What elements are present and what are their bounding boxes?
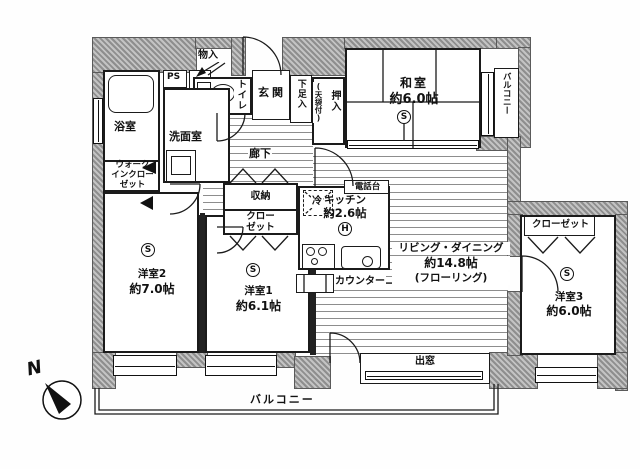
wall-top-washitsu bbox=[345, 38, 497, 48]
wall-top-right-corner bbox=[497, 38, 530, 48]
wall-left bbox=[93, 38, 103, 388]
stove-burner-2 bbox=[318, 247, 327, 256]
wall-room3-window-left bbox=[490, 353, 537, 388]
shoe-cabinet-label: 下足入 bbox=[294, 79, 307, 109]
room1-size-label: 約6.1帖 bbox=[205, 299, 312, 313]
stove-burner-3 bbox=[311, 258, 318, 265]
room3-window bbox=[535, 367, 598, 383]
room1-s-symbol: S bbox=[246, 263, 260, 277]
washitsu-s-symbol: S bbox=[397, 110, 411, 124]
wall-right-upper bbox=[519, 48, 530, 147]
closet-center-label: クロー ゼット bbox=[225, 211, 296, 235]
closet-right-label: クローゼット bbox=[524, 219, 597, 230]
wall-bottom-1 bbox=[177, 353, 207, 367]
north-label: N bbox=[24, 356, 46, 381]
stove-burner-1 bbox=[306, 247, 315, 256]
room1 bbox=[205, 215, 310, 353]
floor-plan: 収納 クロー ゼット 出窓 bbox=[0, 0, 640, 469]
wall-washitsu-bottom bbox=[477, 137, 510, 150]
oshiire-label: 押入 bbox=[327, 90, 341, 112]
monoire-label: 物入 bbox=[197, 50, 219, 62]
kitchen-sink-drain bbox=[362, 256, 373, 267]
storage-closet-block: 収納 クロー ゼット bbox=[223, 183, 298, 235]
wall-bottom-left-corner bbox=[93, 353, 115, 388]
washroom-label: 洗面室 bbox=[168, 130, 203, 143]
living-size-label: 約14.8帖 bbox=[392, 256, 510, 270]
bathtub-icon bbox=[108, 75, 154, 113]
oshiire-note-label: (天袋付) bbox=[313, 82, 324, 123]
room3-name-label: 洋室3 bbox=[520, 291, 618, 304]
room3 bbox=[520, 215, 616, 355]
room2-window bbox=[113, 355, 177, 376]
room1-window bbox=[205, 355, 277, 376]
room2-name-label: 洋室2 bbox=[103, 268, 201, 281]
ps-label: PS bbox=[166, 72, 181, 83]
kitchen-h-symbol: H bbox=[338, 222, 352, 236]
room3-size-label: 約6.0帖 bbox=[520, 304, 618, 318]
toilet-label: トイレ bbox=[234, 79, 247, 111]
compass-icon bbox=[43, 381, 81, 419]
wall-bottom-right-corner bbox=[598, 353, 627, 388]
compass-needle bbox=[45, 383, 71, 414]
bathroom-label: 浴室 bbox=[113, 120, 137, 133]
washbasin-inner bbox=[171, 156, 191, 175]
bay-window-glass bbox=[365, 371, 483, 380]
walkin-closet-label: ウォーク インクロー ゼット bbox=[103, 161, 162, 190]
washitsu-sliding-door bbox=[347, 140, 479, 149]
wall-entrance-right bbox=[283, 38, 345, 75]
bay-window-box: 出窓 bbox=[360, 353, 490, 384]
wall-wing-top-band bbox=[508, 202, 627, 215]
wall-bottom-3 bbox=[295, 357, 330, 388]
wall-top-left bbox=[93, 38, 196, 72]
room3-s-symbol: S bbox=[560, 267, 574, 281]
washitsu-name-label: 和室 bbox=[345, 76, 483, 90]
wall-top-notch bbox=[196, 38, 232, 48]
room2-size-label: 約7.0帖 bbox=[103, 282, 201, 296]
wall-entrance-stub bbox=[232, 38, 245, 75]
genkan-label: 玄関 bbox=[257, 86, 287, 99]
wall-bottom-2 bbox=[277, 353, 295, 367]
phone-stand-label: 電話台 bbox=[344, 182, 391, 192]
hallway-label: 廊下 bbox=[248, 147, 272, 160]
storage-label: 収納 bbox=[225, 187, 296, 207]
bay-window-label: 出窓 bbox=[361, 355, 489, 369]
living-note-label: (フローリング) bbox=[392, 272, 510, 285]
living-name-label: リビング・ダイニング bbox=[392, 242, 510, 255]
room1-name-label: 洋室1 bbox=[205, 285, 312, 298]
kitchen-sink-icon bbox=[341, 246, 381, 269]
washitsu-size-label: 約6.0帖 bbox=[345, 92, 483, 108]
kitchen-size-label: 約2.6帖 bbox=[298, 207, 392, 221]
bathroom-window bbox=[93, 98, 103, 144]
room2-s-symbol: S bbox=[141, 243, 155, 257]
balcony-bottom-label: バルコニー bbox=[249, 393, 316, 406]
counter-label: カウンター bbox=[334, 276, 386, 288]
balcony-side-label: バルコニー bbox=[500, 72, 512, 115]
kitchen-name-label: キッチン bbox=[298, 194, 392, 207]
living-floor-upper bbox=[313, 150, 508, 186]
